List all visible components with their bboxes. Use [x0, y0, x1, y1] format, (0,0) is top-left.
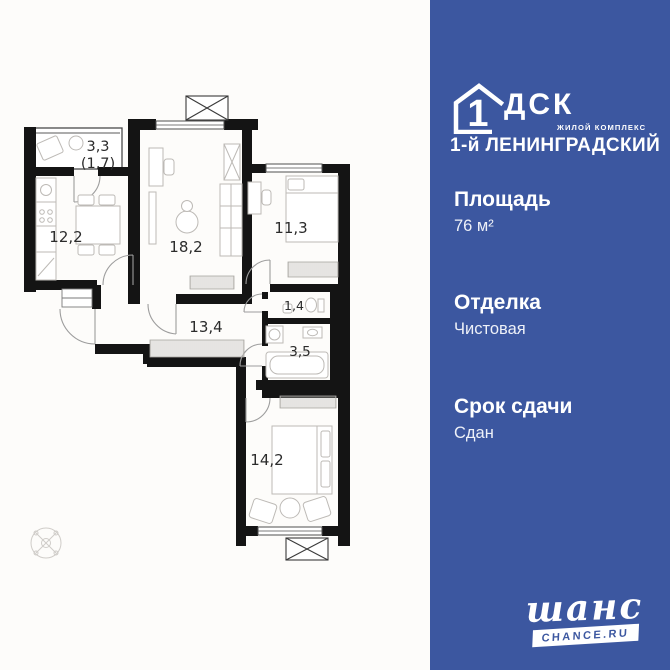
chance-logo: шанс CHANCE.RU [525, 588, 644, 646]
spec-completion-value: Сдан [454, 424, 654, 443]
compass-icon [31, 528, 61, 558]
logo-brand-text: ДСК [504, 90, 574, 120]
room-label-bedroom1: 11,3 [274, 219, 307, 237]
logo-house-number: 1 [467, 93, 488, 134]
spec-completion-label: Срок сдачи [454, 395, 654, 419]
spec-finishing: Отделка Чистовая [454, 291, 654, 339]
balcony-marker-bottom [286, 538, 328, 560]
living-furniture [149, 144, 242, 289]
room-label-balcony-reduced: (1,7) [81, 156, 115, 172]
room-label-balcony: 3,3 [86, 139, 109, 155]
floorplan-svg: 3,3 (1,7) 12,2 18,2 11,3 1,4 13,4 3,5 14… [0, 0, 432, 670]
furniture [36, 135, 338, 524]
room-label-bathroom: 3,5 [289, 344, 310, 360]
info-panel: 1 ДСК ЖИЛОЙ КОМПЛЕКС 1-й ЛЕНИНГРАДСКИЙ П… [430, 0, 670, 670]
hall-wardrobe [150, 340, 244, 357]
spec-area-label: Площадь [454, 188, 654, 212]
house-icon: 1 [450, 82, 504, 134]
flyer: 3,3 (1,7) 12,2 18,2 11,3 1,4 13,4 3,5 14… [0, 0, 670, 670]
room-label-bedroom2: 14,2 [250, 451, 283, 469]
room-label-kitchen: 12,2 [49, 228, 82, 246]
spec-area: Площадь 76 м² [454, 188, 654, 236]
chance-url-badge: CHANCE.RU [533, 624, 639, 647]
spec-finishing-value: Чистовая [454, 320, 654, 339]
balcony-marker-top [186, 96, 228, 120]
entrance-frame [62, 289, 92, 307]
logo: 1 ДСК ЖИЛОЙ КОМПЛЕКС 1-й ЛЕНИНГРАДСКИЙ [450, 82, 662, 162]
spec-completion: Срок сдачи Сдан [454, 395, 654, 443]
spec-area-value: 76 м² [454, 217, 654, 236]
floorplan-panel: 3,3 (1,7) 12,2 18,2 11,3 1,4 13,4 3,5 14… [0, 0, 432, 670]
spec-finishing-label: Отделка [454, 291, 654, 315]
room-label-wc: 1,4 [284, 298, 304, 313]
room-label-hall: 13,4 [189, 318, 222, 336]
logo-tagline: ЖИЛОЙ КОМПЛЕКС [557, 123, 646, 132]
room-label-living: 18,2 [169, 238, 202, 256]
chance-script-text: шанс [525, 588, 644, 628]
complex-name: 1-й ЛЕНИНГРАДСКИЙ [450, 135, 660, 157]
